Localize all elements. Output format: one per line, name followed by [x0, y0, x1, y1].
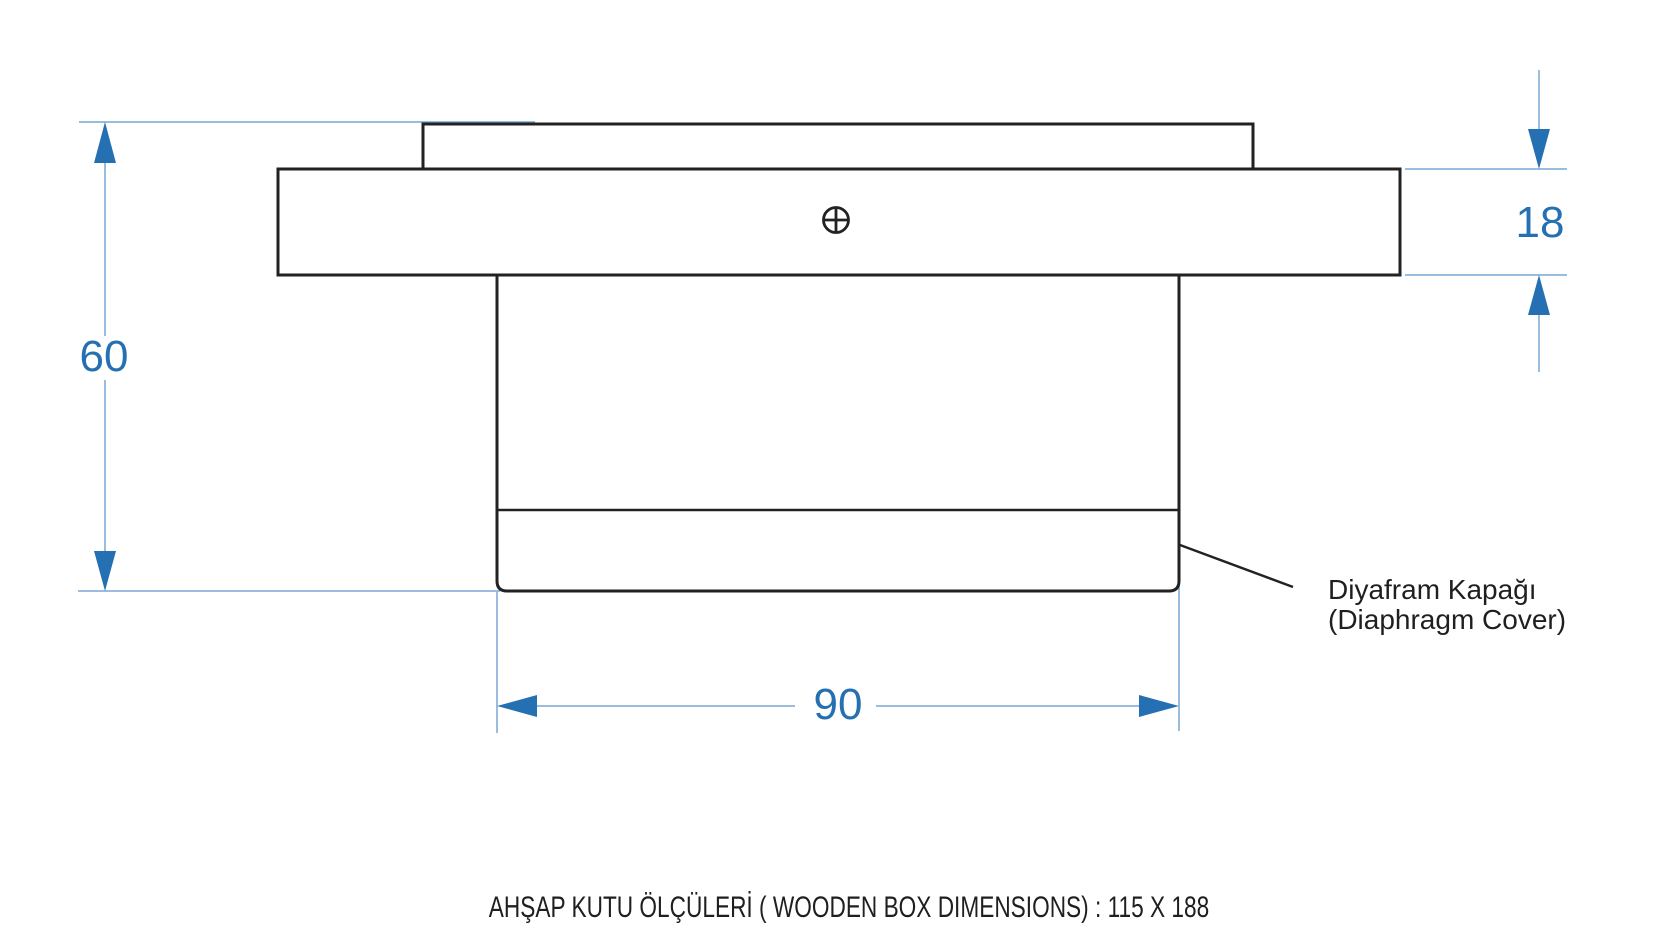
diaphragm-cover-label: Diyafram Kapağı (Diaphragm Cover) [1328, 575, 1566, 635]
technical-drawing-svg [0, 0, 1653, 945]
drawing-canvas: 60 18 90 Diyafram Kapağı (Diaphragm Cove… [0, 0, 1653, 945]
diaphragm-cover-label-native: Diyafram Kapağı [1328, 575, 1566, 605]
diaphragm-cover-label-english: (Diaphragm Cover) [1328, 605, 1566, 635]
arrow-90-right-icon [1139, 695, 1179, 717]
arrow-60-up-icon [94, 122, 116, 163]
leader-line [1180, 545, 1293, 587]
center-mark-icon [823, 207, 850, 234]
arrow-18-down-icon [1528, 129, 1550, 169]
wooden-box-dimensions-caption-text: AHŞAP KUTU ÖLÇÜLERİ ( WOODEN BOX DIMENSI… [489, 891, 1209, 925]
dimension-value-total-height: 60 [80, 335, 129, 379]
arrow-18-up-icon [1528, 275, 1550, 315]
top-plate-outline [423, 124, 1253, 169]
wooden-box-dimensions-caption: AHŞAP KUTU ÖLÇÜLERİ ( WOODEN BOX DIMENSI… [372, 891, 1326, 925]
arrow-90-left-icon [497, 695, 537, 717]
arrow-60-down-icon [94, 551, 116, 591]
body-outline [497, 275, 1179, 591]
flange-outline [278, 169, 1400, 275]
dimension-value-body-width: 90 [814, 683, 863, 727]
dimension-value-flange-thickness: 18 [1516, 201, 1565, 245]
